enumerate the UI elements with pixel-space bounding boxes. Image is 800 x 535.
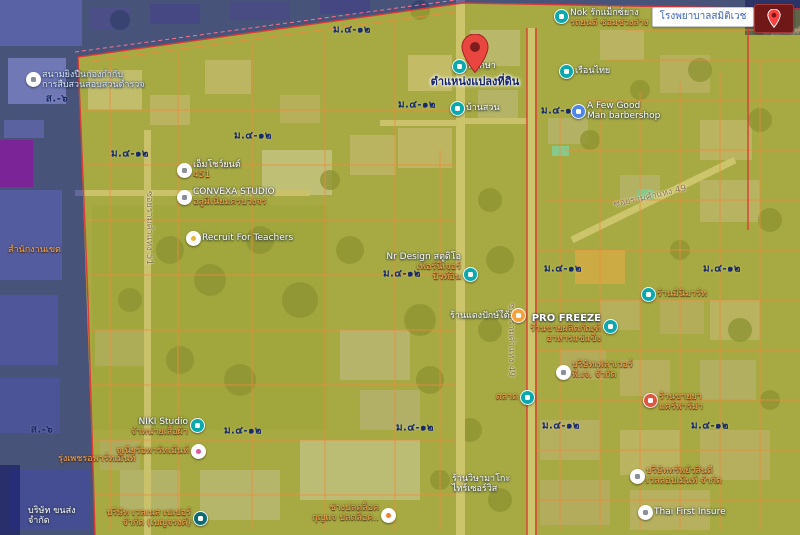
property-pin-label: ตำแหน่งแปลงที่ดิน: [431, 72, 520, 90]
poi-label-line: จำหน่ายเสื้อผ้า: [131, 427, 188, 437]
building-icon: [556, 365, 571, 380]
scissors-icon: [571, 104, 586, 119]
pharmacy-glyph: [648, 398, 653, 403]
poi-label: เรือนไทย: [575, 66, 610, 76]
poi-label-line: เฟอร์นิเจอร์: [386, 262, 461, 272]
poi-label-line: การสืบสวนสอบสวนตำรวจ: [42, 80, 145, 90]
pin-icon: [767, 9, 781, 28]
poi-label: ร้านแดงปักษ์ใต้: [450, 311, 509, 321]
poi-label-line: A Few Good: [587, 101, 660, 111]
map-canvas[interactable]: ซอยรามคำแหง 49ซอยรามคำแหง 49ซอยรามคำแหง …: [0, 0, 800, 535]
poi-label-line: ร้านขายผลิตภัณฑ์: [530, 324, 601, 334]
poi-label: บริษัท ขนส่งจำกัด: [28, 506, 75, 526]
poi-label-line: อาหารแช่แข็ง: [530, 334, 601, 344]
building-glyph: [561, 370, 566, 375]
poi-label: เอ็มโชว์ยนต์451: [193, 160, 241, 180]
poi-label-line: เอ็มโชว์ยนต์: [193, 160, 241, 170]
poi-label: บริษัททรัพย์วสินดีเวลลอปเม้นท์ จำกัด: [646, 466, 722, 486]
poi-label-line: Nr Design สตูดิโอ: [386, 252, 461, 262]
poi-label-line: เวลลอปเม้นท์ จำกัด: [646, 476, 722, 486]
building-icon: [193, 511, 208, 526]
key-glyph: [386, 513, 391, 518]
poi-label-line: Thai First Insure: [654, 507, 726, 517]
poi-label-line: ร้านมินิมาร์ท: [657, 289, 707, 299]
shopping-icon: [190, 418, 205, 433]
store-icon: [177, 163, 192, 178]
target-icon: [26, 72, 41, 87]
building-icon: [638, 505, 653, 520]
store-glyph: [182, 195, 187, 200]
poi-label: ร้านขายยาแคร์ฟาร์ม่า: [659, 392, 703, 412]
lodging-glyph: [196, 449, 201, 454]
shopping-icon: [554, 9, 569, 24]
poi-label: สำนักงานเขต: [8, 245, 61, 255]
poi-label-line: บิวท์อิน: [386, 272, 461, 282]
store-glyph: [182, 168, 187, 173]
poi-label-line: จำกัด: [28, 516, 75, 526]
store-icon: [559, 64, 574, 79]
hospital-pin-button[interactable]: [754, 4, 794, 33]
cart-glyph: [455, 106, 460, 111]
shopping-glyph: [525, 395, 530, 400]
poi-label: ร้านมินิมาร์ท: [657, 289, 707, 299]
building-glyph: [643, 510, 648, 515]
poi-label: Nr Design สตูดิโอเฟอร์นิเจอร์บิวท์อิน: [386, 252, 461, 282]
poi-layer: สนามยิงปืนกองกำกับการสืบสวนสอบสวนตำรวจNo…: [0, 0, 800, 535]
shopping-glyph: [559, 14, 564, 19]
lock-glyph: [646, 292, 651, 297]
poi-label-line: ร้านวิษามาโกะ: [452, 474, 510, 484]
search-box[interactable]: โรงพยาบาลสมิติเวช: [652, 7, 754, 27]
lock-icon: [603, 319, 618, 334]
briefcase-glyph: [191, 236, 196, 241]
lock-icon: [641, 287, 656, 302]
poi-label-line: แคร์ฟาร์ม่า: [659, 402, 703, 412]
building-glyph: [198, 516, 203, 521]
place-glyph: [516, 313, 521, 318]
poi-label-line: รุ่งเพชรอพาร์ทเม้นท์: [58, 454, 135, 464]
poi-label-line: จำกัด (เบญจรงค์): [107, 518, 191, 528]
poi-label: สนามยิงปืนกองกำกับการสืบสวนสอบสวนตำรวจ: [42, 70, 145, 90]
poi-label-line: สนามยิงปืนกองกำกับ: [42, 70, 145, 80]
poi-label-line: ร้านขายยา: [659, 392, 703, 402]
poi-label: Thai First Insure: [654, 507, 726, 517]
poi-label-line: ตลาด: [496, 392, 518, 402]
building-glyph: [635, 474, 640, 479]
poi-label-line: 451: [193, 170, 241, 180]
poi-label-line: บริษัททรัพย์วสินดี: [646, 466, 722, 476]
poi-label: บริษัท เวลเนส เปเปอร์จำกัด (เบญจรงค์): [107, 508, 191, 528]
store-glyph: [564, 69, 569, 74]
lock-glyph: [608, 324, 613, 329]
poi-label-line: พี.เจ. จำกัด: [572, 370, 633, 380]
poi-label-line: ไทร์เซอร์วิส: [452, 484, 510, 494]
poi-label-line: PRO FREEZE: [530, 314, 601, 324]
poi-label: บริษัทเฟลาเวอร์พี.เจ. จำกัด: [572, 360, 633, 380]
store-icon: [177, 190, 192, 205]
poi-label-line: บ้านสวน: [466, 103, 500, 113]
poi-label: Nok รักแม็กซ์ยางรถยนต์ ซ่อมช่วงล่าง: [570, 8, 648, 28]
poi-label-line: สำนักงานเขต: [8, 245, 61, 255]
poi-label-line: อลูมิเนียมครบวงจร: [193, 197, 275, 207]
poi-label-line: เรือนไทย: [575, 66, 610, 76]
poi-label-line: NIKI Studio: [131, 417, 188, 427]
place-icon: [511, 308, 526, 323]
poi-label: CONVEXA STUDIOอลูมิเนียมครบวงจร: [193, 187, 275, 207]
store-glyph: [468, 272, 473, 277]
target-glyph: [31, 77, 36, 82]
poi-label-line: Nok รักแม็กซ์ยาง: [570, 8, 648, 18]
poi-label: NIKI Studioจำหน่ายเสื้อผ้า: [131, 417, 188, 437]
poi-label: รุ่งเพชรอพาร์ทเม้นท์: [58, 454, 135, 464]
poi-label-line: ร้านแดงปักษ์ใต้: [450, 311, 509, 321]
poi-label-line: ช่างปลดล็อค: [312, 503, 379, 513]
poi-label: ร้านวิษามาโกะไทร์เซอร์วิส: [452, 474, 510, 494]
shopping-icon: [520, 390, 535, 405]
poi-label: A Few GoodMan barbershop: [587, 101, 660, 121]
cart-icon: [450, 101, 465, 116]
scissors-glyph: [576, 109, 581, 114]
pharmacy-icon: [643, 393, 658, 408]
briefcase-icon: [186, 231, 201, 246]
poi-label-line: CONVEXA STUDIO: [193, 187, 275, 197]
store-icon: [463, 267, 478, 282]
property-pin-icon[interactable]: [461, 34, 489, 74]
poi-label: Recruit For Teachers: [202, 233, 293, 243]
shopping-glyph: [195, 423, 200, 428]
poi-label: ตลาด: [496, 392, 518, 402]
poi-label-line: Recruit For Teachers: [202, 233, 293, 243]
poi-label: ช่างปลดล็อคกุญแจ ปลดล็อค..: [312, 503, 379, 523]
key-icon: [381, 508, 396, 523]
poi-label: PRO FREEZEร้านขายผลิตภัณฑ์อาหารแช่แข็ง: [530, 314, 601, 344]
lodging-icon: [191, 444, 206, 459]
poi-label-line: บริษัท ขนส่ง: [28, 506, 75, 516]
building-icon: [630, 469, 645, 484]
poi-label-line: บริษัทเฟลาเวอร์: [572, 360, 633, 370]
poi-label: บ้านสวน: [466, 103, 500, 113]
poi-label-line: รถยนต์ ซ่อมช่วงล่าง: [570, 18, 648, 28]
poi-label-line: กุญแจ ปลดล็อค..: [312, 513, 379, 523]
poi-label-line: บริษัท เวลเนส เปเปอร์: [107, 508, 191, 518]
poi-label-line: Man barbershop: [587, 111, 660, 121]
